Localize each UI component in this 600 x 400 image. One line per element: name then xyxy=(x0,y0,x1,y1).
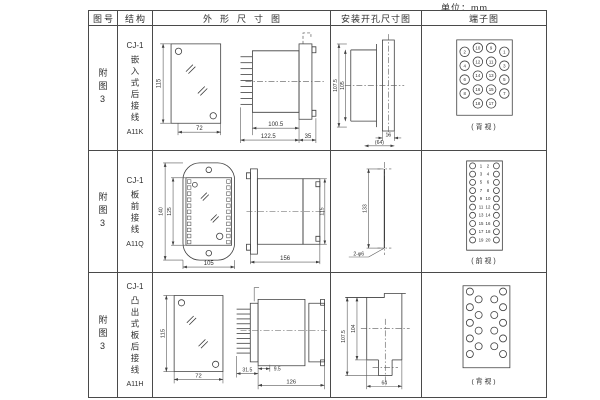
dim-flange: 35 xyxy=(299,118,316,143)
svg-text:5: 5 xyxy=(479,180,482,185)
cutout-outline xyxy=(345,293,409,385)
structure-desc: 凸出式板后接线 xyxy=(129,296,141,377)
svg-text:8: 8 xyxy=(463,91,466,96)
terminal-circles: 2 4 6 8 10 12 14 16 18 9 11 13 15 17 1 3… xyxy=(459,43,508,108)
screw-mark-icon xyxy=(211,214,219,222)
dim-label: 72 xyxy=(195,373,202,379)
dim-label: 122.5 xyxy=(261,134,277,140)
dim-label: 9.5 xyxy=(274,366,281,372)
row3-structure: CJ-1 凸出式板后接线 A11H xyxy=(118,273,153,397)
dim-label: 105 xyxy=(204,261,215,267)
type-code: A11K xyxy=(127,129,144,136)
svg-text:9: 9 xyxy=(479,196,482,201)
row3-install-cell: 107.5 104 64 xyxy=(331,273,422,397)
svg-text:9: 9 xyxy=(489,45,492,50)
svg-text:17: 17 xyxy=(478,229,483,234)
row1-structure: CJ-1 嵌入式后接线 A11K xyxy=(118,26,153,151)
dim-label: 115 xyxy=(319,207,325,215)
svg-text:4: 4 xyxy=(486,171,489,176)
model-text: CJ-1 xyxy=(127,176,144,185)
dim-label: 107.5 xyxy=(333,79,339,92)
dim-label: 100.5 xyxy=(268,122,284,128)
dim-total-width: (64) xyxy=(365,140,395,146)
row1-fig-no: 附图3 xyxy=(89,26,118,151)
type-code: A11H xyxy=(127,381,144,388)
dim-height: 115 xyxy=(160,295,174,371)
svg-text:3: 3 xyxy=(479,171,482,176)
dim-body-length: 126 xyxy=(258,365,324,388)
svg-text:12: 12 xyxy=(485,204,490,209)
row1-install-drawing: 107.5 105 16 (64) xyxy=(331,26,421,150)
fig-no-text: 附图3 xyxy=(97,192,110,232)
fig-no-text: 附图3 xyxy=(97,68,110,108)
svg-text:5: 5 xyxy=(503,77,506,82)
svg-text:7: 7 xyxy=(479,188,482,193)
svg-text:14: 14 xyxy=(485,213,490,218)
svg-text:11: 11 xyxy=(488,59,493,64)
svg-text:16: 16 xyxy=(485,221,490,226)
dim-label: 16 xyxy=(386,132,392,138)
dim-label: 31.5 xyxy=(242,367,252,373)
svg-text:10: 10 xyxy=(475,45,480,50)
dim-label: (64) xyxy=(375,140,384,146)
row3-fig-no: 附图3 xyxy=(89,273,118,397)
row1-outline-cell: 115 72 xyxy=(153,26,331,151)
side-view xyxy=(237,287,328,365)
header-structure: 结构 xyxy=(118,11,153,26)
dim-hole-distance: 133 xyxy=(363,169,381,248)
dim-label: 104 xyxy=(351,324,357,333)
dim-width: 72 xyxy=(174,371,223,383)
model-text: CJ-1 xyxy=(127,41,144,50)
structure-desc: 板前接线 xyxy=(129,190,141,236)
row2-install-drawing: 133 2-φ6 xyxy=(331,151,421,272)
screw-mark-icon xyxy=(186,65,195,74)
dim-width: 64 xyxy=(367,359,402,388)
screw-mark-icon xyxy=(199,339,208,348)
model-text: CJ-1 xyxy=(127,282,144,291)
hole-callout: 2-φ6 xyxy=(349,248,385,257)
screw-mark-icon xyxy=(187,315,196,324)
terminal-strip-left xyxy=(187,180,191,244)
dimension-table: 图号 结构 外形尺寸图 安装开孔尺寸图 端子图 附图3 CJ-1 嵌入式后接线 … xyxy=(88,10,547,398)
row2-fig-no: 附图3 xyxy=(89,151,118,273)
row3-install-drawing: 107.5 104 64 xyxy=(331,274,421,397)
svg-text:17: 17 xyxy=(488,101,493,106)
svg-text:10: 10 xyxy=(485,196,490,201)
row2-terminal-cell: 1 2 3 4 5 6 7 8 9 10 11 12 13 14 15 16 1… xyxy=(422,151,546,273)
svg-text:1: 1 xyxy=(479,163,482,168)
svg-text:20: 20 xyxy=(485,237,490,242)
svg-text:6: 6 xyxy=(486,180,489,185)
side-view xyxy=(241,33,324,119)
svg-text:18: 18 xyxy=(475,101,480,106)
svg-text:6: 6 xyxy=(463,77,466,82)
row2-structure: CJ-1 板前接线 A11Q xyxy=(118,151,153,273)
fig-no-text: 附图3 xyxy=(97,315,110,355)
dim-width: 72 xyxy=(178,123,221,135)
svg-text:19: 19 xyxy=(478,237,483,242)
svg-text:1: 1 xyxy=(503,49,506,54)
svg-text:7: 7 xyxy=(503,91,506,96)
svg-text:15: 15 xyxy=(478,221,483,226)
view-label: (背视) xyxy=(471,376,497,385)
terminal-strip-right xyxy=(227,180,231,244)
svg-text:16: 16 xyxy=(475,87,480,92)
svg-text:18: 18 xyxy=(485,229,490,234)
type-code: A11Q xyxy=(126,241,143,248)
svg-text:14: 14 xyxy=(475,73,480,78)
dim-pin-length: 31.5 xyxy=(237,356,258,389)
svg-text:8: 8 xyxy=(486,188,489,193)
side-view xyxy=(246,169,325,254)
hole-label: 2-φ6 xyxy=(353,252,364,258)
svg-text:11: 11 xyxy=(478,204,483,209)
dim-label: 105 xyxy=(340,81,346,90)
screw-mark-icon xyxy=(198,87,207,96)
row1-terminal-cell: 2 4 6 8 10 12 14 16 18 9 11 13 15 17 1 3… xyxy=(422,26,546,151)
dim-label: 126 xyxy=(286,379,296,385)
dim-depth: 156 xyxy=(250,244,319,264)
dim-label: 156 xyxy=(280,256,291,262)
front-view xyxy=(171,44,221,123)
svg-text:2: 2 xyxy=(486,163,489,168)
svg-text:4: 4 xyxy=(463,63,466,68)
header-terminal: 端子图 xyxy=(422,11,546,26)
terminal-circles xyxy=(466,288,506,358)
view-label: (前视) xyxy=(471,256,497,265)
dim-label: 115 xyxy=(160,328,166,337)
view-label: (背视) xyxy=(471,122,497,131)
svg-text:2: 2 xyxy=(463,49,466,54)
front-view xyxy=(174,295,223,371)
header-fig-no: 图号 xyxy=(89,11,118,26)
header-install: 安装开孔尺寸图 xyxy=(331,11,422,26)
dim-label: 35 xyxy=(305,134,312,140)
header-outline: 外形尺寸图 xyxy=(153,11,331,26)
dim-label: 107.5 xyxy=(341,329,347,342)
dim-height: 115 xyxy=(157,44,171,123)
row1-terminal-diagram: 2 4 6 8 10 12 14 16 18 9 11 13 15 17 1 3… xyxy=(423,26,546,150)
dim-label: 115 xyxy=(157,78,163,88)
dim-label: 72 xyxy=(196,126,203,132)
row3-outline-drawing: 115 72 xyxy=(153,274,330,397)
row1-install-cell: 107.5 105 16 (64) xyxy=(331,26,422,151)
row2-install-cell: 133 2-φ6 xyxy=(331,151,422,273)
row3-outline-cell: 115 72 xyxy=(153,273,331,397)
row2-terminal-diagram: 1 2 3 4 5 6 7 8 9 10 11 12 13 14 15 16 1… xyxy=(423,151,546,272)
dim-label: 64 xyxy=(381,380,387,386)
structure-desc: 嵌入式后接线 xyxy=(129,55,141,124)
row3-terminal-cell: (背视) xyxy=(422,273,546,397)
svg-text:15: 15 xyxy=(488,87,493,92)
dim-label: 133 xyxy=(363,204,369,213)
row2-outline-drawing: 140 125 105 xyxy=(153,151,330,272)
row2-outline-cell: 140 125 105 xyxy=(153,151,331,273)
row3-terminal-diagram: (背视) xyxy=(423,274,546,397)
svg-text:13: 13 xyxy=(488,73,493,78)
front-view xyxy=(183,163,235,260)
screw-mark-icon xyxy=(201,193,209,201)
dim-outer-height: 107.5 xyxy=(341,297,378,375)
row1-outline-drawing: 115 72 xyxy=(153,26,330,150)
dim-side-height: 115 xyxy=(319,179,326,244)
dim-label: 140 xyxy=(159,207,165,216)
dim-body-length: 100.5 xyxy=(252,112,299,143)
terminal-circles: 1 2 3 4 5 6 7 8 9 10 11 12 13 14 15 16 1… xyxy=(469,163,499,243)
svg-text:3: 3 xyxy=(503,63,506,68)
cutout-outline xyxy=(345,34,404,137)
svg-text:13: 13 xyxy=(478,213,483,218)
panel-hook xyxy=(303,33,311,44)
svg-text:12: 12 xyxy=(475,59,480,64)
dim-label: 125 xyxy=(167,207,173,216)
dim-width: 105 xyxy=(183,260,235,269)
mounting-line xyxy=(377,162,391,255)
dim-inner-height: 105 xyxy=(340,50,346,121)
